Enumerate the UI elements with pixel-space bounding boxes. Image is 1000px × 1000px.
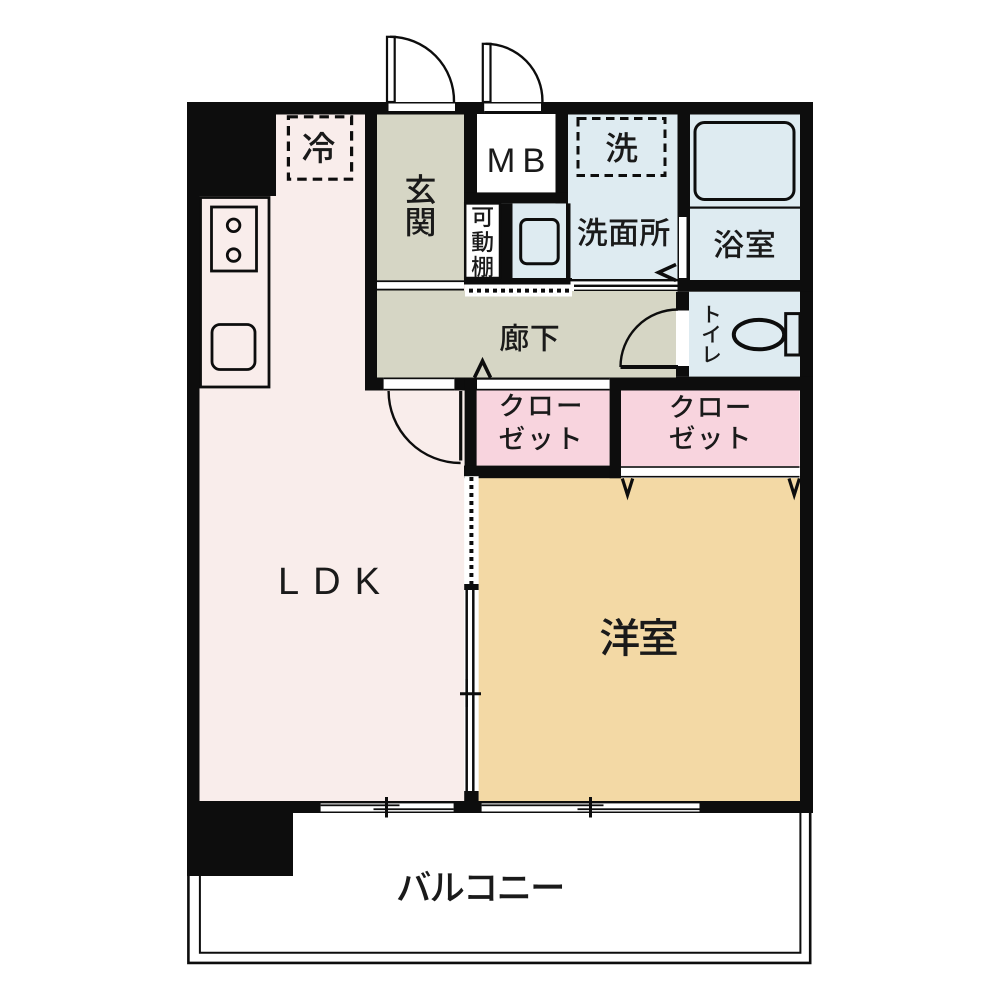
svg-text:MB: MB (487, 142, 553, 180)
svg-text:LDK: LDK (278, 561, 394, 603)
